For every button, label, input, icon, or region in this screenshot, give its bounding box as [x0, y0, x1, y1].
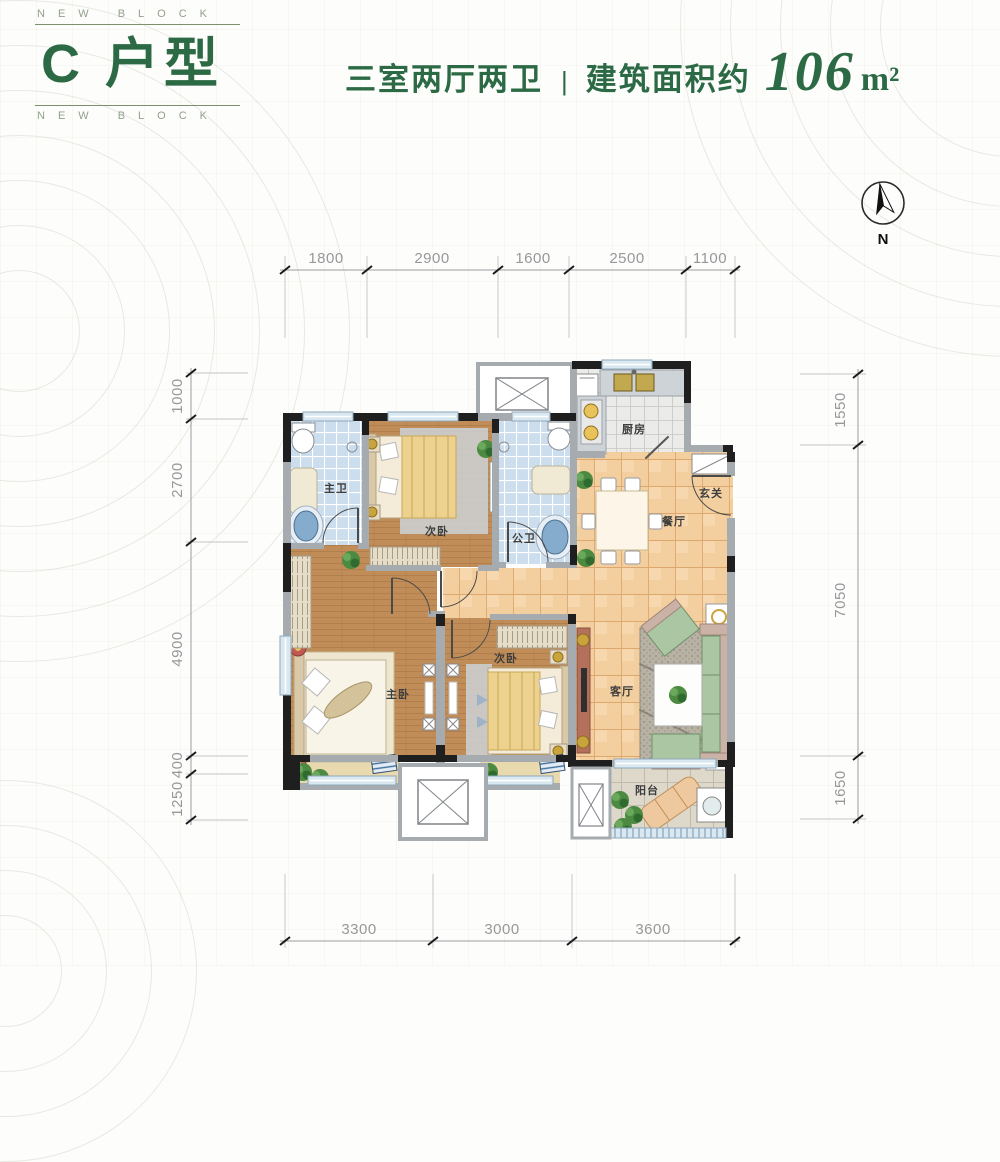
plant-icon	[577, 549, 595, 567]
dim-label: 3000	[484, 921, 519, 938]
tv	[581, 668, 587, 712]
plant-icon	[669, 686, 687, 704]
stair-shaft	[572, 768, 610, 838]
hallway-floor	[443, 568, 576, 618]
dim-label: 1000	[169, 378, 186, 413]
room-label-living: 客厅	[609, 684, 634, 698]
dim-label: 1650	[832, 770, 849, 805]
window-master-bath	[303, 412, 353, 421]
balcony-railing	[610, 828, 726, 838]
sink-right	[636, 374, 654, 391]
room-label-balcony: 阳台	[635, 783, 659, 797]
dim-label: 1600	[515, 250, 550, 267]
sofa	[702, 636, 720, 752]
dim-label: 1100	[693, 250, 727, 267]
window-public-bath	[512, 412, 550, 421]
room-label-bedroom-3: 次卧	[494, 651, 518, 665]
dim-label: 1550	[832, 392, 849, 427]
room-label-master-bedroom: 主卧	[386, 687, 410, 701]
room-label-dining: 餐厅	[661, 514, 686, 528]
closet	[370, 547, 440, 567]
floor-plan-svg: 主卫 次卧 公卫 厨房 玄关 餐厅 主卧 次卧 客厅 阳台	[0, 0, 1000, 966]
plant-icon	[342, 551, 360, 569]
compass-needle-icon	[871, 182, 894, 216]
closet	[497, 626, 567, 648]
window-living-balcony-slider	[614, 759, 716, 768]
window-bedroom-2	[388, 412, 458, 421]
dim-label: 2700	[169, 462, 186, 497]
dim-label: 7050	[832, 582, 849, 617]
room-label-kitchen: 厨房	[622, 422, 646, 436]
compass-north-label: N	[878, 231, 889, 248]
sink-left	[614, 374, 632, 391]
room-label-master-bath: 主卫	[324, 481, 348, 495]
window-bay-bed3	[485, 776, 553, 785]
dims-right: 1550 7050 1650	[832, 392, 849, 805]
dims-bottom: 3300 3000 3600	[341, 921, 670, 938]
entry-furniture	[692, 454, 732, 474]
dining-table	[596, 491, 648, 550]
dim-label: 2900	[414, 250, 449, 267]
wardrobe	[289, 556, 311, 648]
window-bay-master	[308, 776, 396, 785]
plant-icon	[575, 471, 593, 489]
plant-icon	[611, 791, 629, 809]
dim-label: 1800	[308, 250, 343, 267]
dim-label: 2500	[609, 250, 644, 267]
room-label-entry: 玄关	[699, 486, 723, 500]
window-kitchen	[602, 360, 652, 369]
dim-label: 1250	[169, 781, 186, 816]
room-label-bedroom-2: 次卧	[425, 524, 449, 538]
elevator-bottom	[400, 765, 486, 839]
compass: N	[862, 182, 904, 248]
window-master-bedroom	[280, 636, 291, 695]
dims-left: 1000 2700 4900 400 1250	[169, 378, 186, 816]
room-label-public-bath: 公卫	[512, 532, 536, 545]
dim-label: 3300	[341, 921, 376, 938]
dim-label: 3600	[635, 921, 670, 938]
elevator-top	[496, 378, 548, 410]
dim-label: 400	[169, 752, 186, 779]
dims-top: 1800 2900 1600 2500 1100	[308, 250, 727, 267]
dim-label: 4900	[169, 631, 186, 666]
